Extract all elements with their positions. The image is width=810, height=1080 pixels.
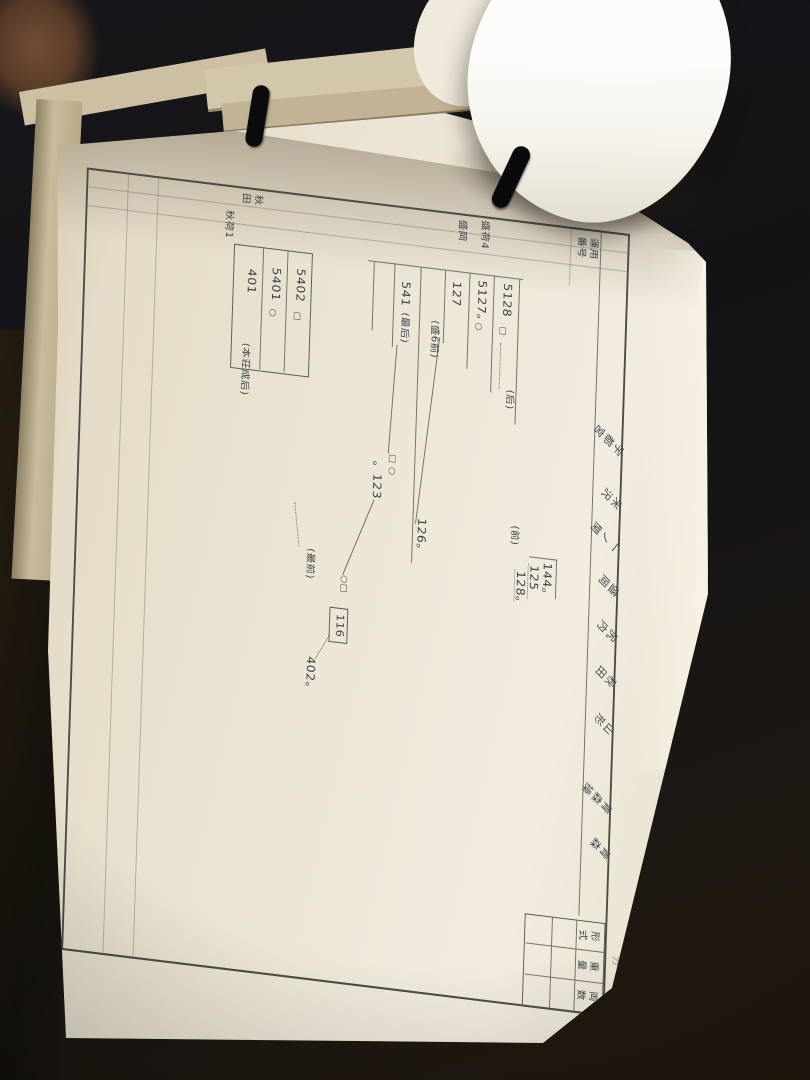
margin-mark: カ [609,955,619,967]
station-header: 山形 [591,709,617,737]
station-header: 秋田 [593,662,619,690]
train-number: 541 [399,281,412,308]
annotation: (盛6前) [428,320,439,359]
depot-label: 盛岡 [456,219,467,242]
circle-square-marks: ○□ [338,574,347,593]
train-number: 126。 [415,517,428,557]
row-line [466,274,470,369]
train-number: 5127。 [475,280,488,328]
train-number: 5128 [501,283,514,318]
duty-label: 秋荷1 [223,209,234,239]
header-underline [578,233,601,916]
corner-label: 番号 [575,236,586,259]
row-line [392,264,396,347]
train-path-line [342,499,374,575]
circle-mark: ○ [473,322,482,332]
row-line [443,271,446,344]
train-number: 128。 [514,570,527,610]
train-number: 144。 [540,562,553,602]
train-number: 127 [450,281,463,308]
annotation: (最后) [398,312,409,344]
dotted-path [294,503,299,547]
train-number: 116 [334,613,346,638]
bracket-line [529,556,557,560]
row-line [103,175,130,953]
train-path-line [388,345,398,454]
station-header: 米沢 [599,484,625,512]
photo-of-open-book: 運用 番号 盛荷4 盛岡 秋荷1 秋田 宇都宮 米沢 一ノ関 盛岡 尻内 秋田 … [0,0,810,1080]
bracket-line [555,560,557,599]
annotation: (前) [508,525,519,546]
annotation: (最前) [304,547,315,579]
row-line [490,277,495,393]
train-number: 125 [527,564,540,591]
station-header: 青森操 [580,779,615,816]
depot-label: 秋田 [239,189,264,203]
train-path-line [415,337,440,523]
square-mark: □ [497,326,506,336]
train-number: 402。 [304,656,317,696]
column-header: 重量 [575,956,600,970]
cell-line [569,229,572,285]
station-header: 宇都宮 [591,421,626,458]
dotted-path [315,635,330,659]
square-mark: □ [291,311,300,321]
train-number: 401 [245,268,258,295]
corner-label: 運用 [587,237,598,260]
square-circle-marks: □ ○ [386,454,396,477]
row-line [133,178,160,956]
row-line [514,280,520,425]
column-header: 両数 [574,986,599,1000]
working-diagram-table: 運用 番号 盛荷4 盛岡 秋荷1 秋田 宇都宮 米沢 一ノ関 盛岡 尻内 秋田 … [61,167,630,1016]
dotted-path [499,343,501,389]
circle-mark: ○ [267,308,276,318]
annotation: (本荘成后) [238,342,250,396]
annotation: (后) [503,389,514,410]
train-number: 5401 [269,267,282,302]
duty-label: 盛荷4 [478,220,489,250]
station-header: 青森 [587,834,613,862]
column-header: 形式 [576,926,601,940]
station-header: 尻内 [595,616,621,644]
row-line [372,262,375,330]
station-header: 一ノ関 [588,518,623,555]
train-number: 5402 [294,268,307,303]
station-header: 盛岡 [596,571,622,599]
train-number: 。123 [370,460,383,500]
